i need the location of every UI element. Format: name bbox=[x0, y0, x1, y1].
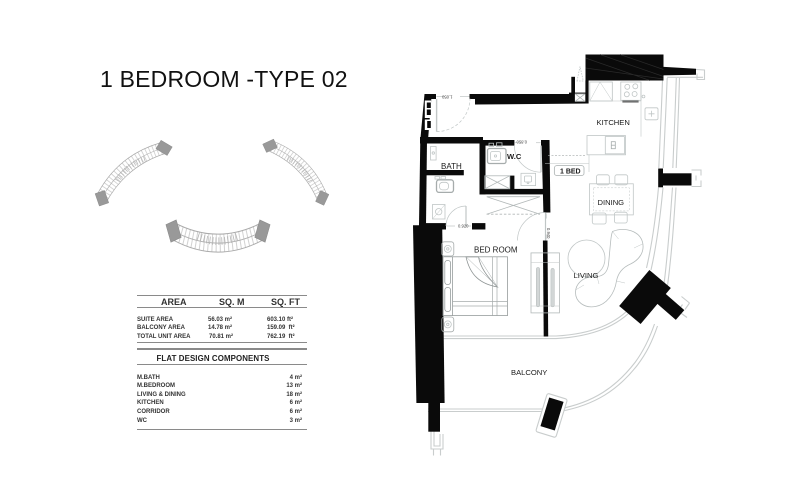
svg-text:0.920: 0.920 bbox=[458, 224, 469, 229]
svg-text:KITCHEN: KITCHEN bbox=[597, 118, 630, 127]
svg-text:BATH: BATH bbox=[441, 162, 462, 171]
svg-text:DINING: DINING bbox=[598, 198, 625, 207]
svg-text:0.940: 0.940 bbox=[546, 228, 551, 239]
svg-text:BED ROOM: BED ROOM bbox=[474, 246, 518, 255]
svg-text:1 BED: 1 BED bbox=[560, 168, 581, 175]
svg-text:W.C: W.C bbox=[507, 152, 522, 161]
svg-text:BALCONY: BALCONY bbox=[511, 368, 547, 377]
svg-text:0.850: 0.850 bbox=[516, 140, 527, 145]
svg-text:1.050: 1.050 bbox=[441, 95, 452, 100]
svg-text:LIVING: LIVING bbox=[574, 271, 599, 280]
